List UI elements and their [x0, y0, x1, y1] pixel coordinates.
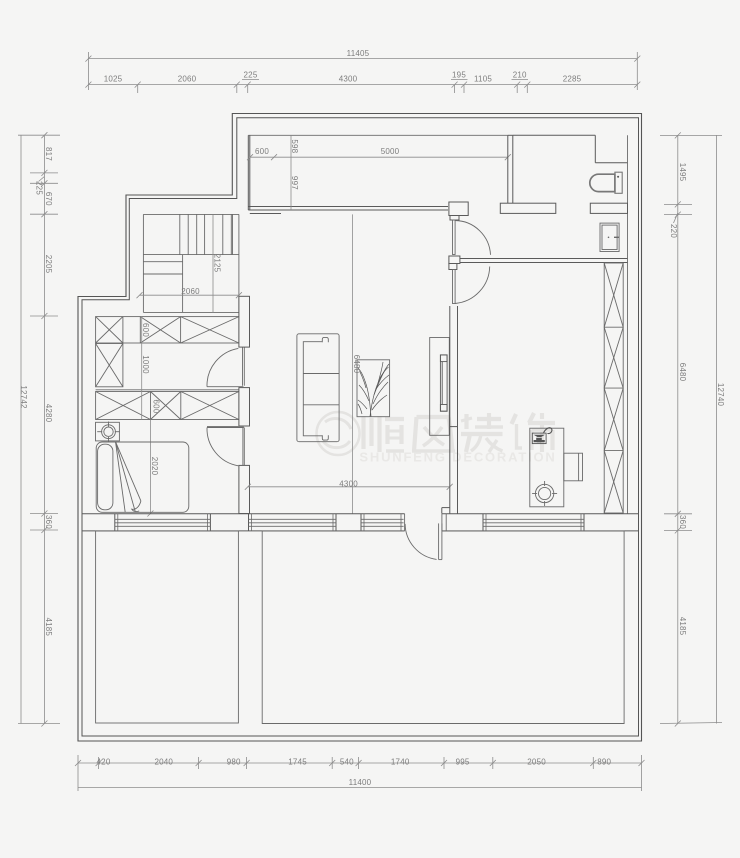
svg-text:540: 540	[340, 758, 354, 767]
svg-text:670: 670	[44, 192, 53, 206]
svg-text:1105: 1105	[474, 75, 492, 84]
svg-text:600: 600	[152, 400, 161, 414]
svg-text:598: 598	[290, 139, 299, 153]
svg-text:4300: 4300	[339, 75, 358, 84]
svg-text:980: 980	[227, 758, 241, 767]
svg-text:995: 995	[456, 758, 470, 767]
svg-text:2040: 2040	[154, 758, 173, 767]
svg-text:225: 225	[34, 181, 43, 195]
svg-text:5000: 5000	[381, 147, 400, 156]
svg-text:2205: 2205	[44, 255, 53, 274]
svg-text:817: 817	[44, 147, 53, 161]
svg-text:2060: 2060	[178, 75, 197, 84]
svg-text:210: 210	[513, 71, 527, 80]
svg-text:1000: 1000	[141, 355, 150, 374]
svg-text:2060: 2060	[181, 287, 200, 296]
svg-text:420: 420	[97, 758, 111, 767]
svg-text:12742: 12742	[19, 385, 28, 409]
svg-text:4185: 4185	[678, 617, 687, 636]
svg-text:997: 997	[290, 176, 299, 190]
svg-text:195: 195	[452, 71, 466, 80]
svg-text:6480: 6480	[678, 363, 687, 382]
svg-text:12740: 12740	[716, 383, 725, 407]
svg-text:220: 220	[669, 224, 678, 238]
svg-text:4280: 4280	[44, 404, 53, 423]
svg-text:4300: 4300	[339, 479, 358, 488]
svg-text:4185: 4185	[44, 617, 53, 636]
svg-text:600: 600	[141, 323, 150, 337]
svg-text:360: 360	[44, 515, 53, 529]
svg-text:1745: 1745	[288, 758, 307, 767]
svg-text:6480: 6480	[352, 355, 361, 374]
svg-text:11405: 11405	[347, 49, 370, 58]
svg-text:890: 890	[597, 758, 611, 767]
svg-text:1740: 1740	[391, 758, 410, 767]
svg-text:1025: 1025	[104, 75, 123, 84]
svg-text:2285: 2285	[563, 75, 582, 84]
svg-text:600: 600	[255, 147, 269, 156]
svg-text:2125: 2125	[213, 254, 222, 273]
svg-text:11400: 11400	[349, 778, 372, 787]
svg-text:225: 225	[244, 71, 258, 80]
svg-text:360: 360	[678, 515, 687, 529]
svg-text:2020: 2020	[150, 457, 159, 476]
svg-text:1495: 1495	[678, 163, 687, 182]
svg-text:2050: 2050	[527, 758, 546, 767]
